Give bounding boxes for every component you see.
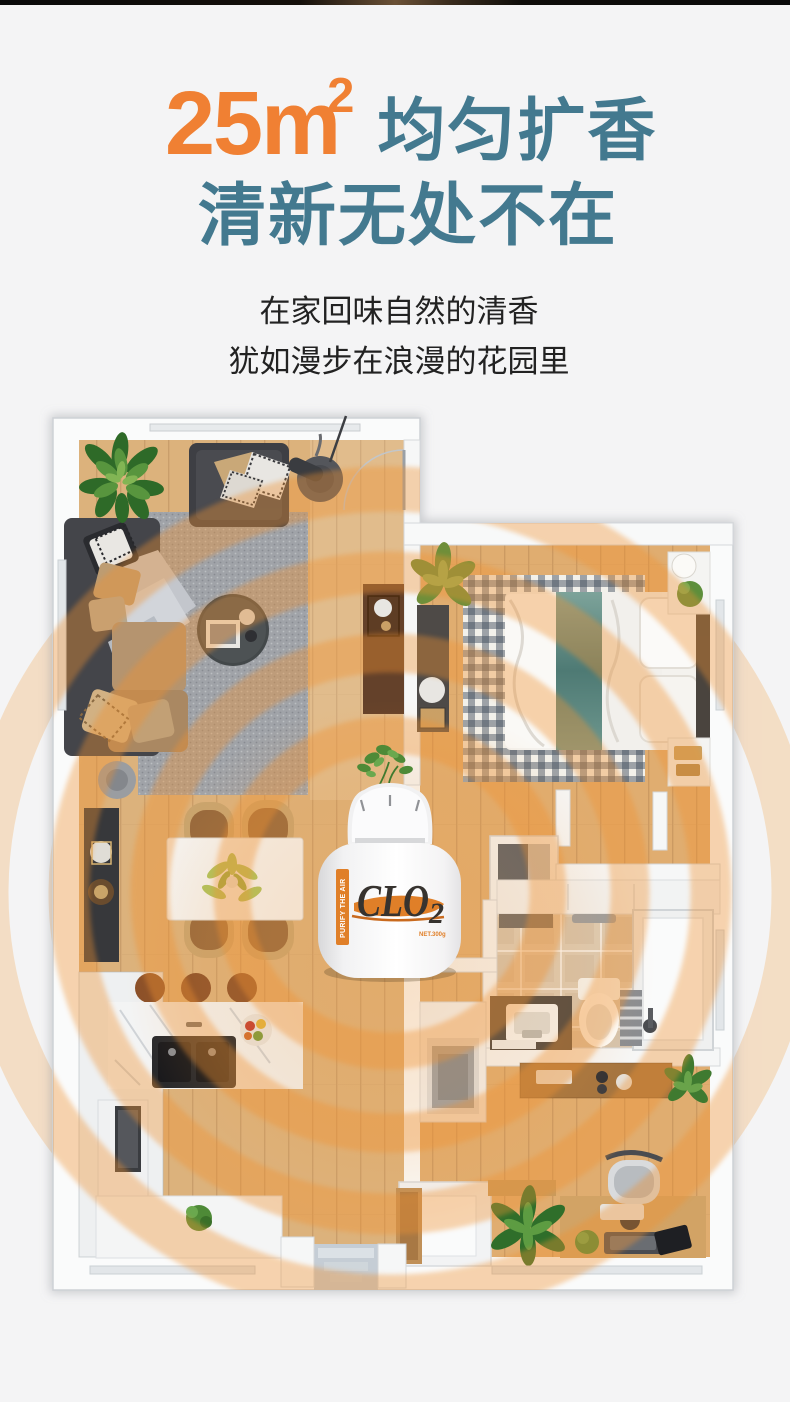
svg-text:2: 2 (428, 897, 444, 930)
svg-text:NET.300g: NET.300g (419, 932, 446, 938)
svg-text:PURIFY THE AIR: PURIFY THE AIR (340, 879, 347, 938)
svg-text:CLO: CLO (357, 875, 429, 926)
